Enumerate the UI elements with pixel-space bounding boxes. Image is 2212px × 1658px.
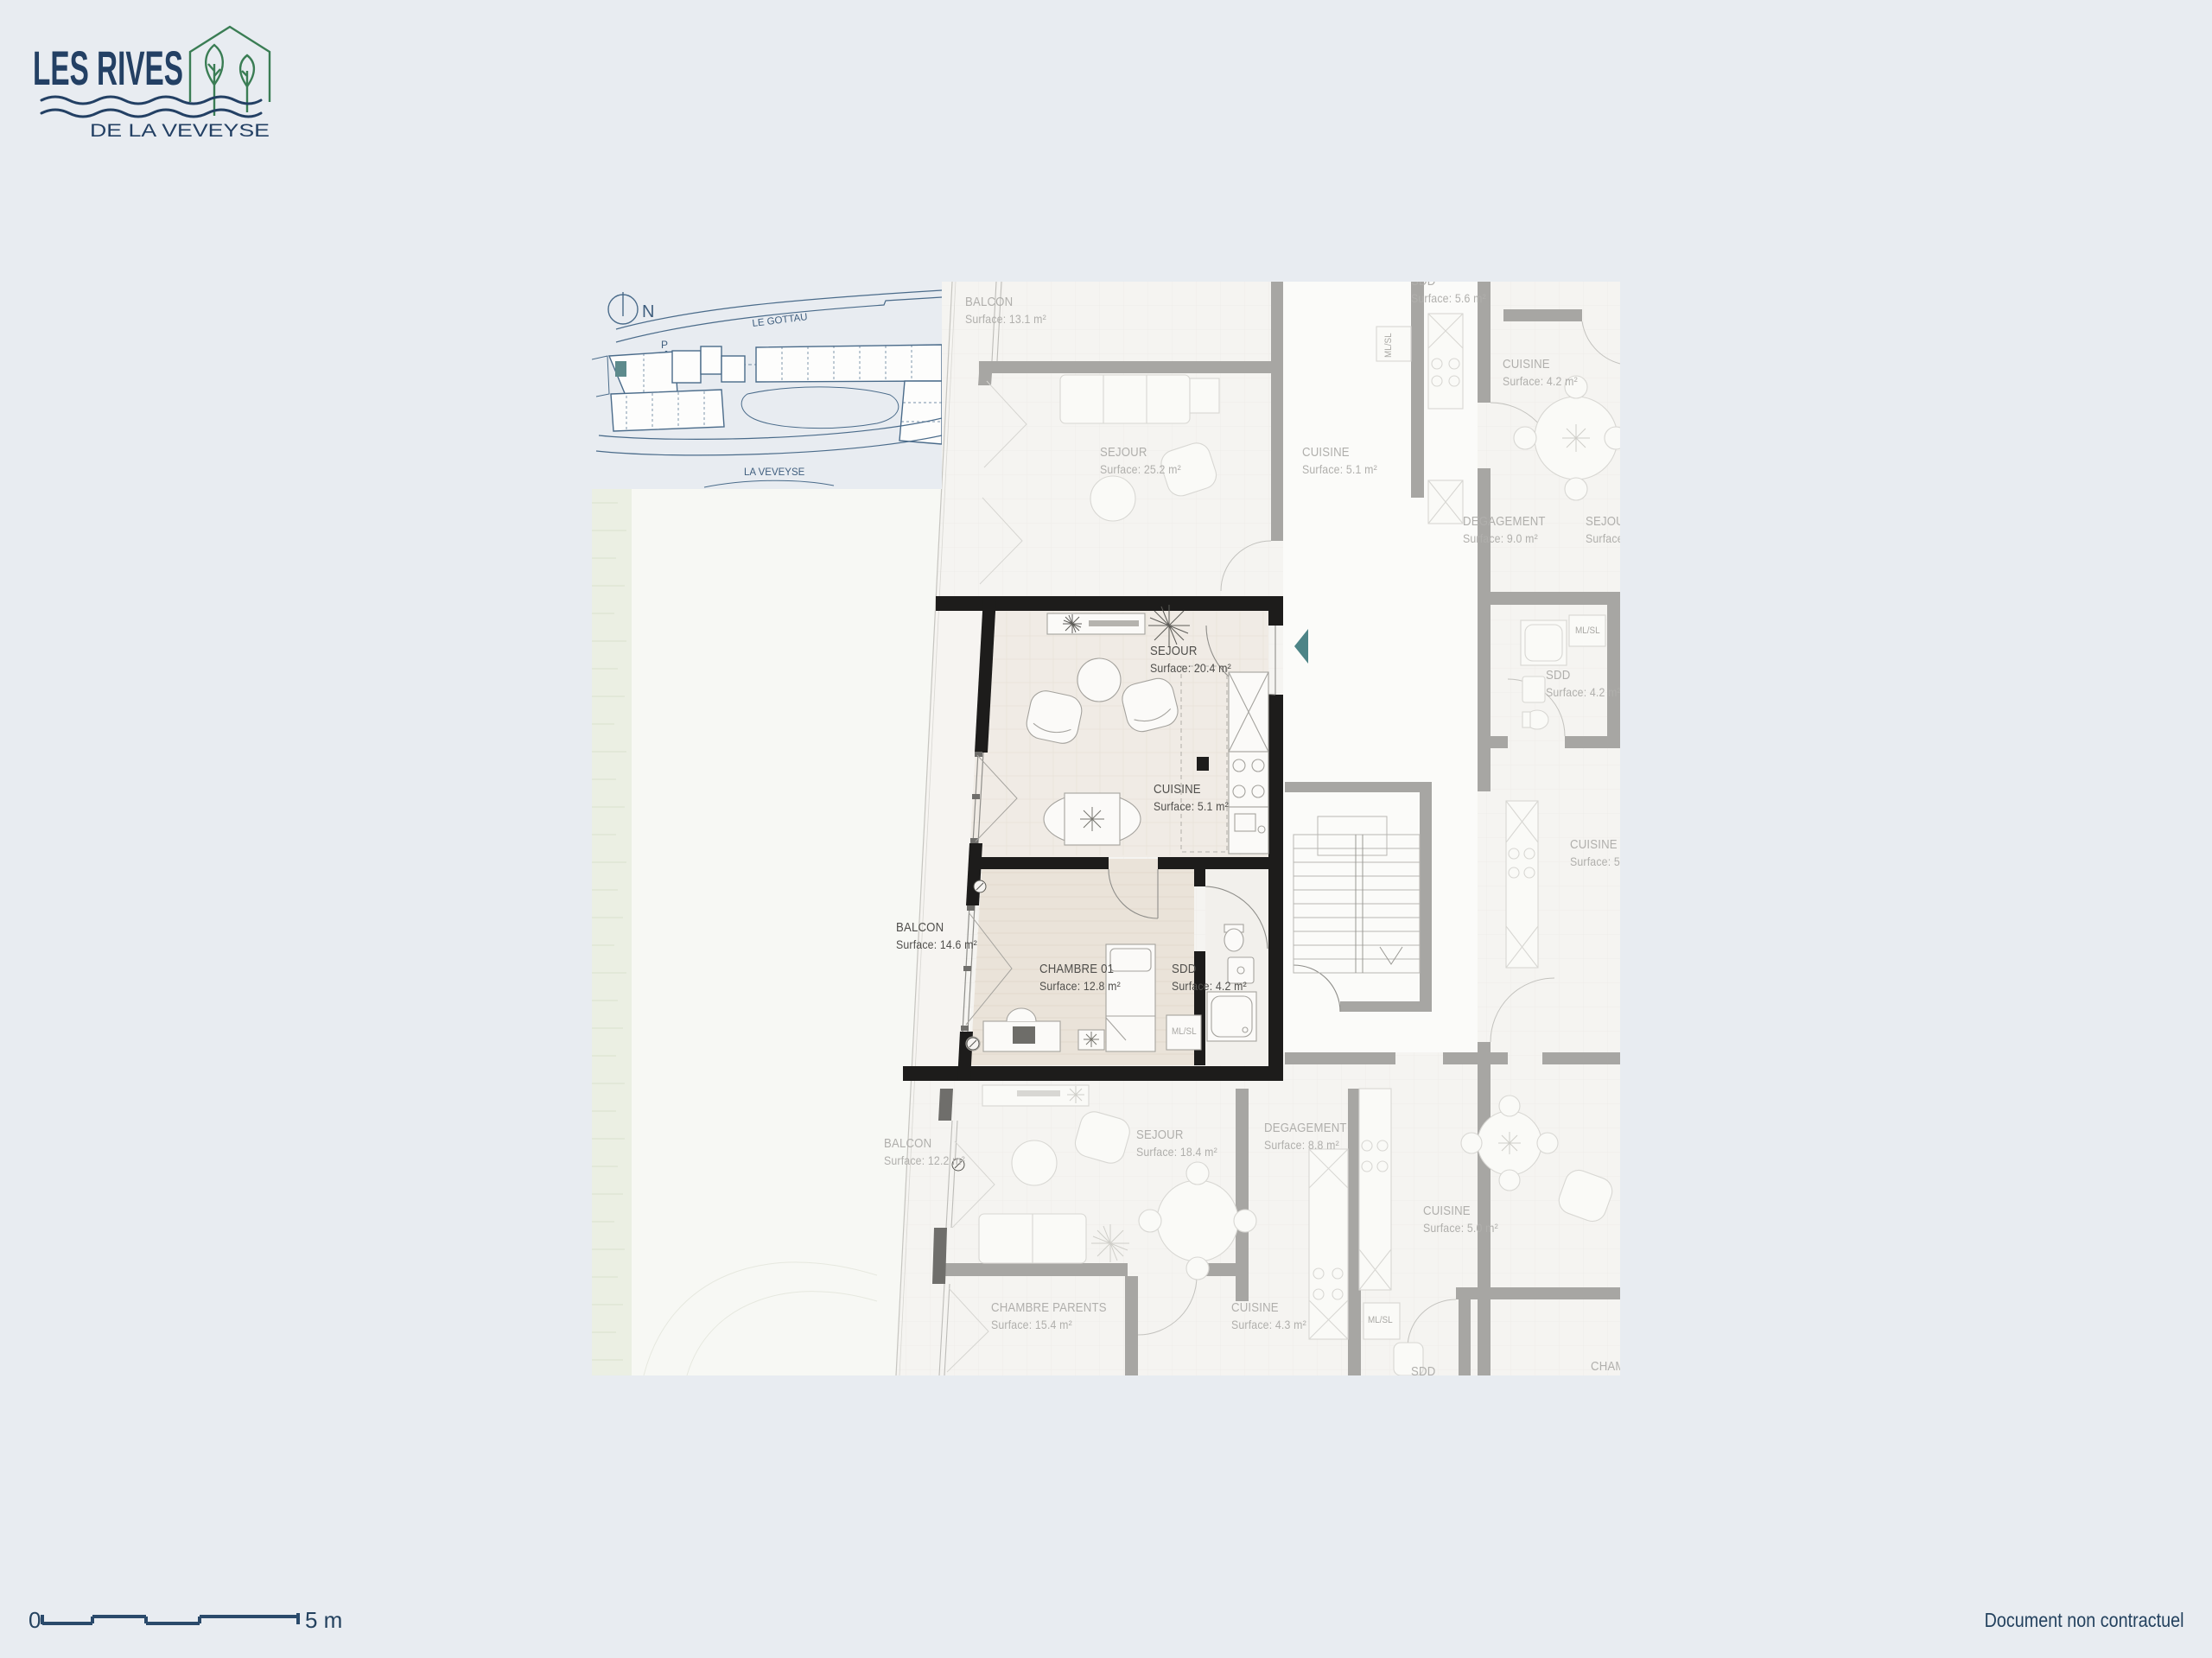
- mlsl-label: ML/SL: [1368, 1315, 1393, 1325]
- unit-location-marker: [615, 361, 626, 377]
- street-label-top: LE GOTTAU: [752, 312, 808, 329]
- room-label: CUISINESurface: 4.3 m²: [1231, 1299, 1306, 1332]
- room-label: SDD: [1411, 1363, 1435, 1375]
- room-label: CHAMBRE: [1591, 1358, 1620, 1375]
- room-label-sejour: SEJOURSurface: 20.4 m²: [1150, 643, 1231, 676]
- room-label: CUISINESurface: 5.1 m²: [1570, 836, 1620, 869]
- north-label: N: [642, 302, 654, 321]
- floorplan-canvas: N LE GOTTAU P LA VEVEYSE SEJOURSurface: …: [592, 282, 1620, 1375]
- disclaimer-text: Document non contractuel: [1984, 1609, 2183, 1632]
- siteplan-drawing: N LE GOTTAU P LA VEVEYSE: [592, 282, 942, 489]
- room-label: CUISINESurface: 4.2 m²: [1503, 356, 1578, 389]
- brand-title: LES RIVES: [33, 41, 183, 95]
- room-label: CUISINESurface: 5.1 m²: [1302, 444, 1377, 477]
- scale-end-label: 5 m: [305, 1607, 342, 1633]
- siteplan-inset: N LE GOTTAU P LA VEVEYSE: [592, 282, 942, 489]
- room-label: SDDSurface: 5.6 m²: [1411, 282, 1486, 306]
- brand-logo: LES RIVES DE LA VEVEYSE: [29, 19, 289, 140]
- mlsl-label: ML/SL: [1383, 333, 1394, 358]
- room-label-balcon: BALCONSurface: 14.6 m²: [896, 919, 977, 952]
- room-label-sdd: SDDSurface: 4.2 m²: [1172, 961, 1247, 994]
- floorplan-page: LES RIVES DE LA VEVEYSE: [0, 0, 2212, 1658]
- room-label: SEJOURSurface: 25.2 m²: [1100, 444, 1181, 477]
- room-label: DEGAGEMENTSurface: 9.0 m²: [1463, 513, 1546, 546]
- scale-zero-label: 0: [29, 1607, 41, 1633]
- parking-label: P: [661, 339, 668, 351]
- room-label: CHAMBRE PARENTSSurface: 15.4 m²: [991, 1299, 1107, 1332]
- room-label-cuisine: CUISINESurface: 5.1 m²: [1154, 781, 1229, 814]
- waves-icon: [41, 97, 261, 117]
- room-label-chambre: CHAMBRE 01Surface: 12.8 m²: [1039, 961, 1121, 994]
- brand-subtitle: DE LA VEVEYSE: [90, 121, 270, 140]
- room-label: SDDSurface: 4.2 m²: [1546, 667, 1620, 700]
- river-label: LA VEVEYSE: [744, 467, 805, 478]
- room-label: SEJOURSurface: 18.4 m²: [1136, 1127, 1217, 1159]
- mlsl-label-unit: ML/SL: [1171, 1026, 1198, 1037]
- scale-bar: 0 5 m: [29, 1601, 374, 1636]
- room-label: CUISINESurface: 5.0 m²: [1423, 1203, 1498, 1236]
- room-label: DEGAGEMENTSurface: 8.8 m²: [1264, 1120, 1347, 1153]
- room-label: SEJOURSurface: 18.4 m²: [1586, 513, 1620, 546]
- room-label: BALCONSurface: 13.1 m²: [965, 294, 1046, 327]
- room-label: BALCONSurface: 12.2 m²: [884, 1135, 965, 1168]
- scale-line: [42, 1613, 298, 1624]
- mlsl-label: ML/SL: [1575, 626, 1600, 636]
- brand-logo-graphic: LES RIVES DE LA VEVEYSE: [29, 19, 289, 140]
